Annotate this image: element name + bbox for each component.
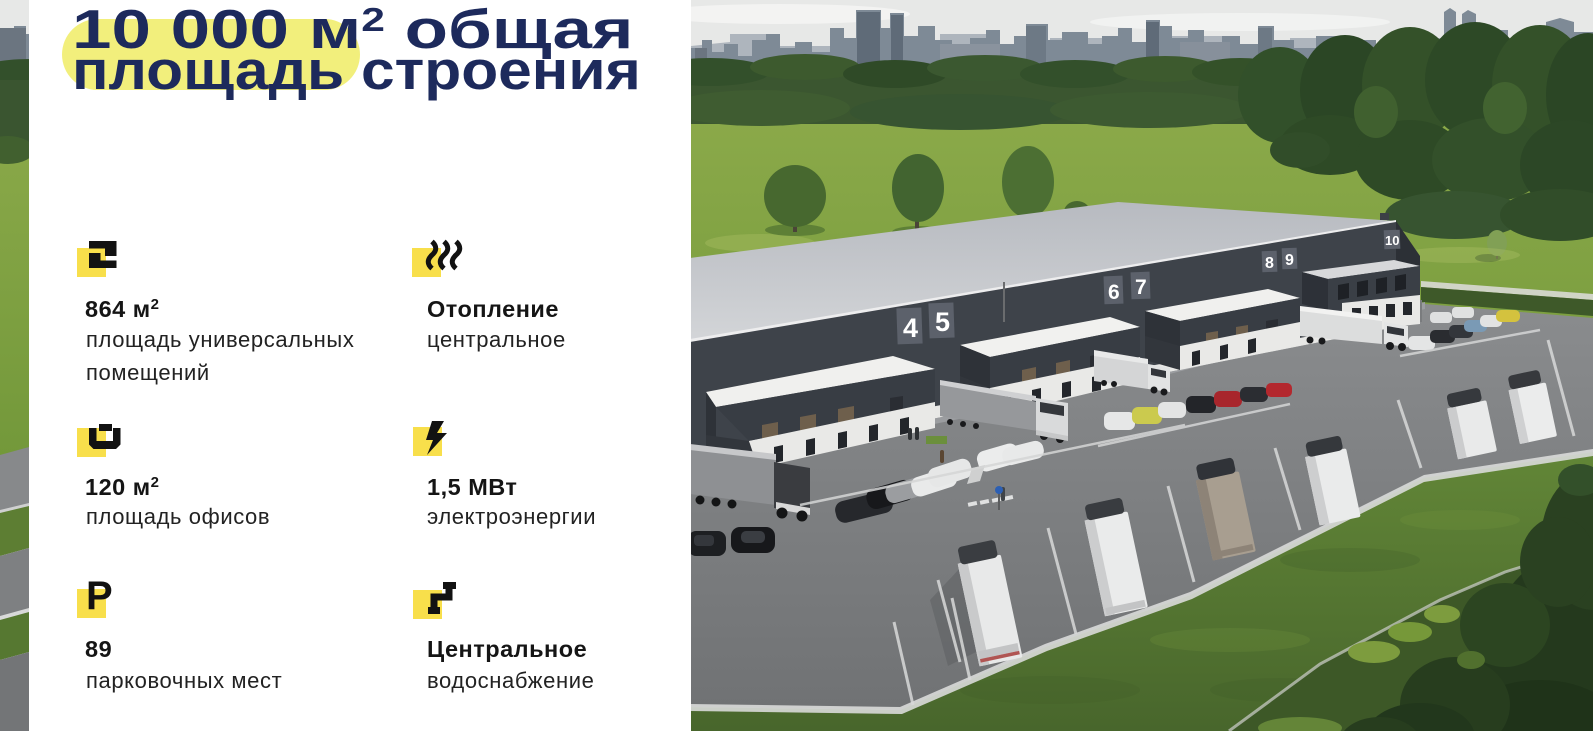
svg-text:7: 7	[1135, 276, 1147, 299]
svg-text:8: 8	[1265, 255, 1274, 272]
svg-text:10: 10	[1385, 233, 1399, 248]
svg-text:9: 9	[1285, 252, 1294, 269]
svg-text:4: 4	[903, 313, 918, 343]
svg-text:6: 6	[1108, 281, 1120, 304]
svg-text:5: 5	[935, 307, 950, 337]
